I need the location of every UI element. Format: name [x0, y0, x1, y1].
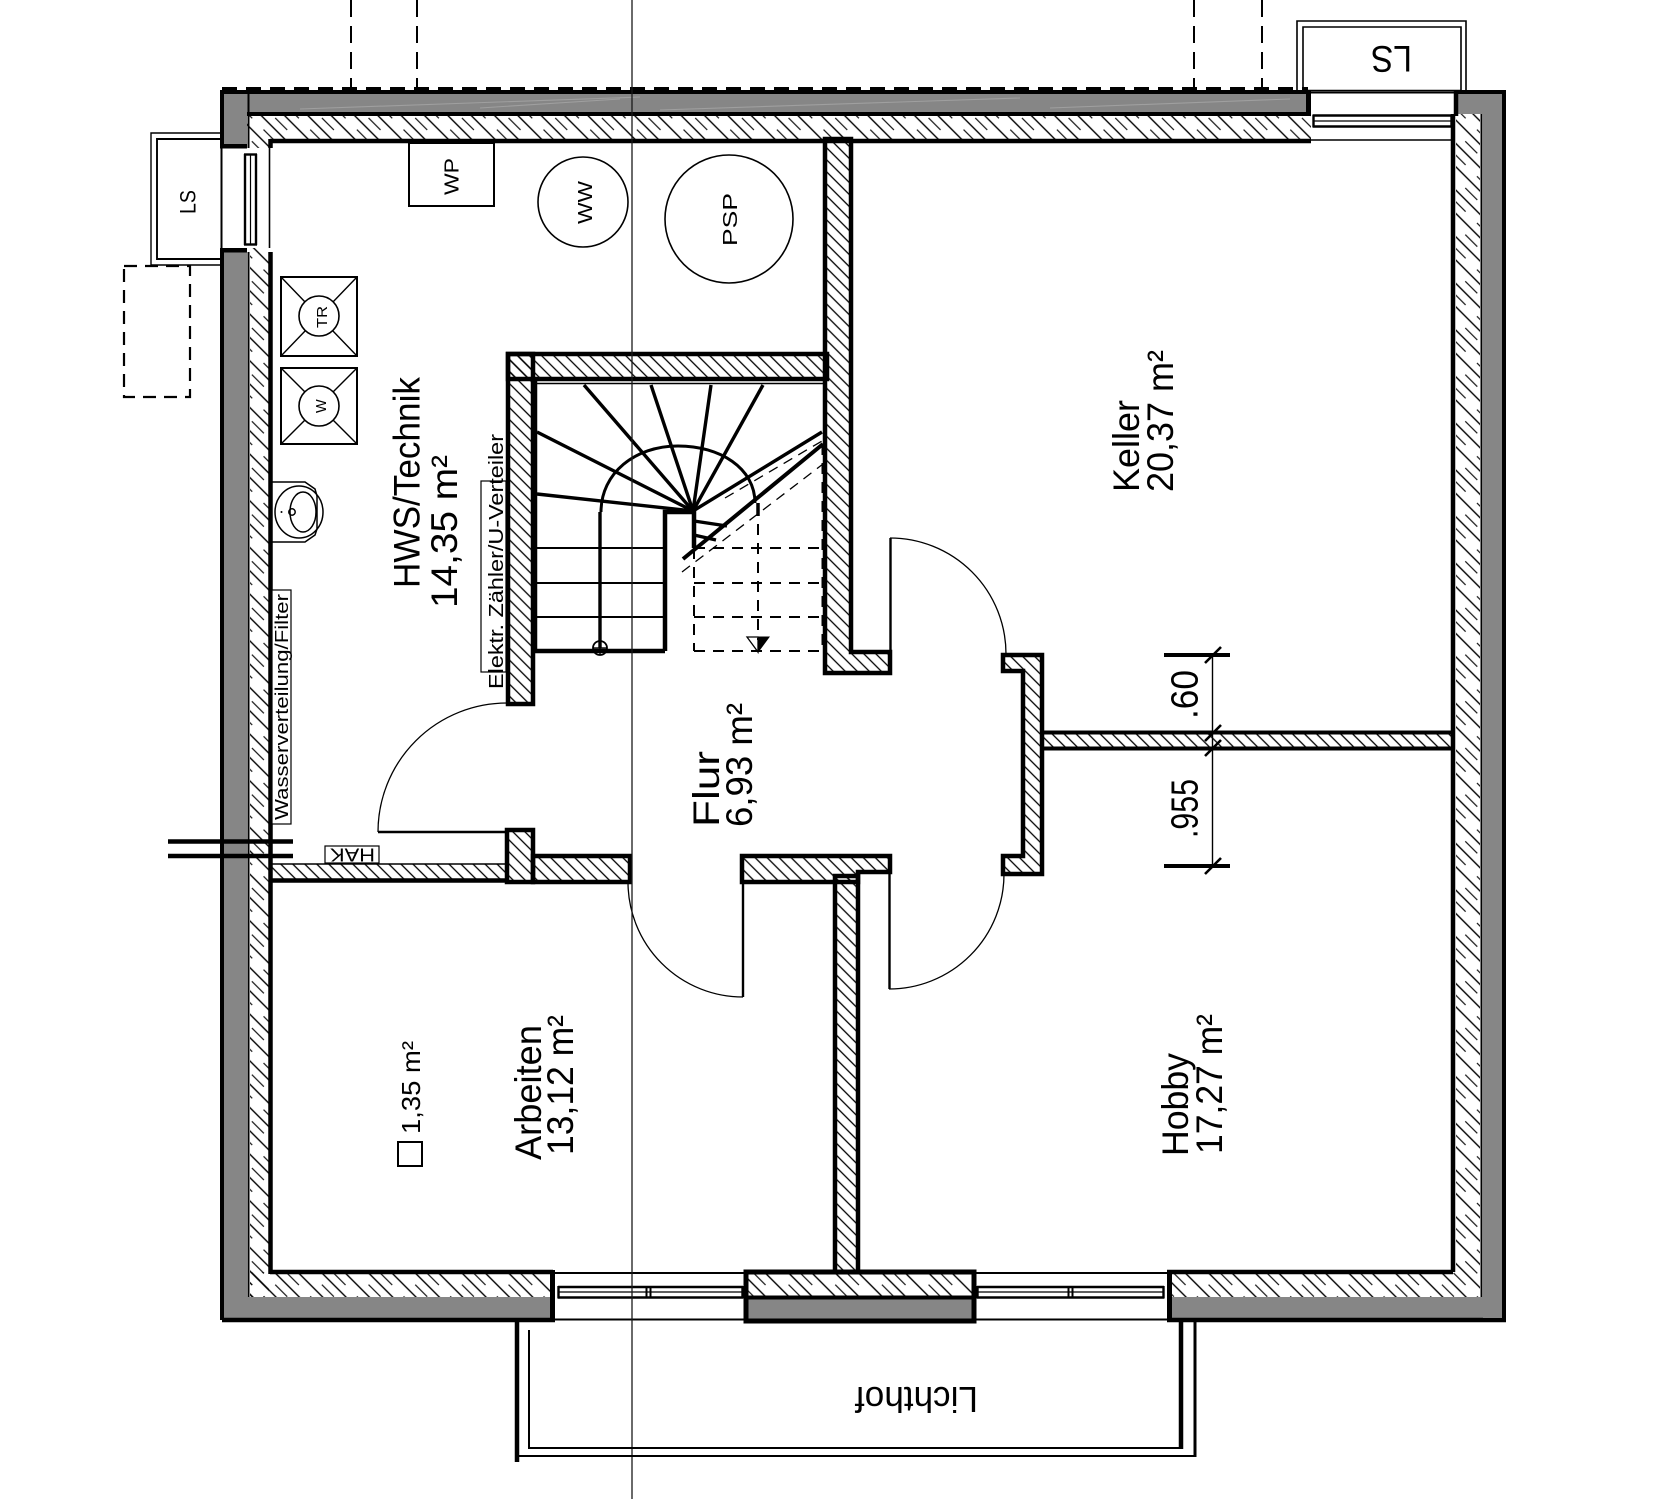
svg-text:6,93 m²: 6,93 m²: [719, 703, 760, 827]
svg-text:.60: .60: [1165, 670, 1207, 719]
svg-text:HWS/Technik: HWS/Technik: [387, 377, 428, 588]
svg-text:14,35 m²: 14,35 m²: [424, 455, 465, 608]
svg-text:Lichthof: Lichthof: [854, 1379, 978, 1420]
svg-text:LS: LS: [1371, 38, 1412, 79]
svg-text:PSP: PSP: [720, 193, 742, 246]
svg-text:WP: WP: [442, 158, 464, 195]
svg-text:Elektr. Zähler/U-Verteiler: Elektr. Zähler/U-Verteiler: [486, 434, 508, 689]
svg-text:13,12 m²: 13,12 m²: [540, 1015, 581, 1155]
svg-text:20,37 m²: 20,37 m²: [1140, 350, 1181, 492]
svg-text:WW: WW: [575, 181, 597, 224]
svg-text:LS: LS: [176, 190, 201, 214]
svg-text:17,27 m²: 17,27 m²: [1189, 1014, 1230, 1154]
svg-text:HAK: HAK: [330, 845, 375, 865]
svg-text:Wasserverteilung/Filter: Wasserverteilung/Filter: [272, 594, 292, 820]
svg-text:1,35 m²: 1,35 m²: [396, 1041, 426, 1134]
svg-text:.955: .955: [1165, 779, 1207, 838]
svg-text:TR: TR: [315, 306, 331, 328]
svg-text:W: W: [314, 399, 330, 413]
